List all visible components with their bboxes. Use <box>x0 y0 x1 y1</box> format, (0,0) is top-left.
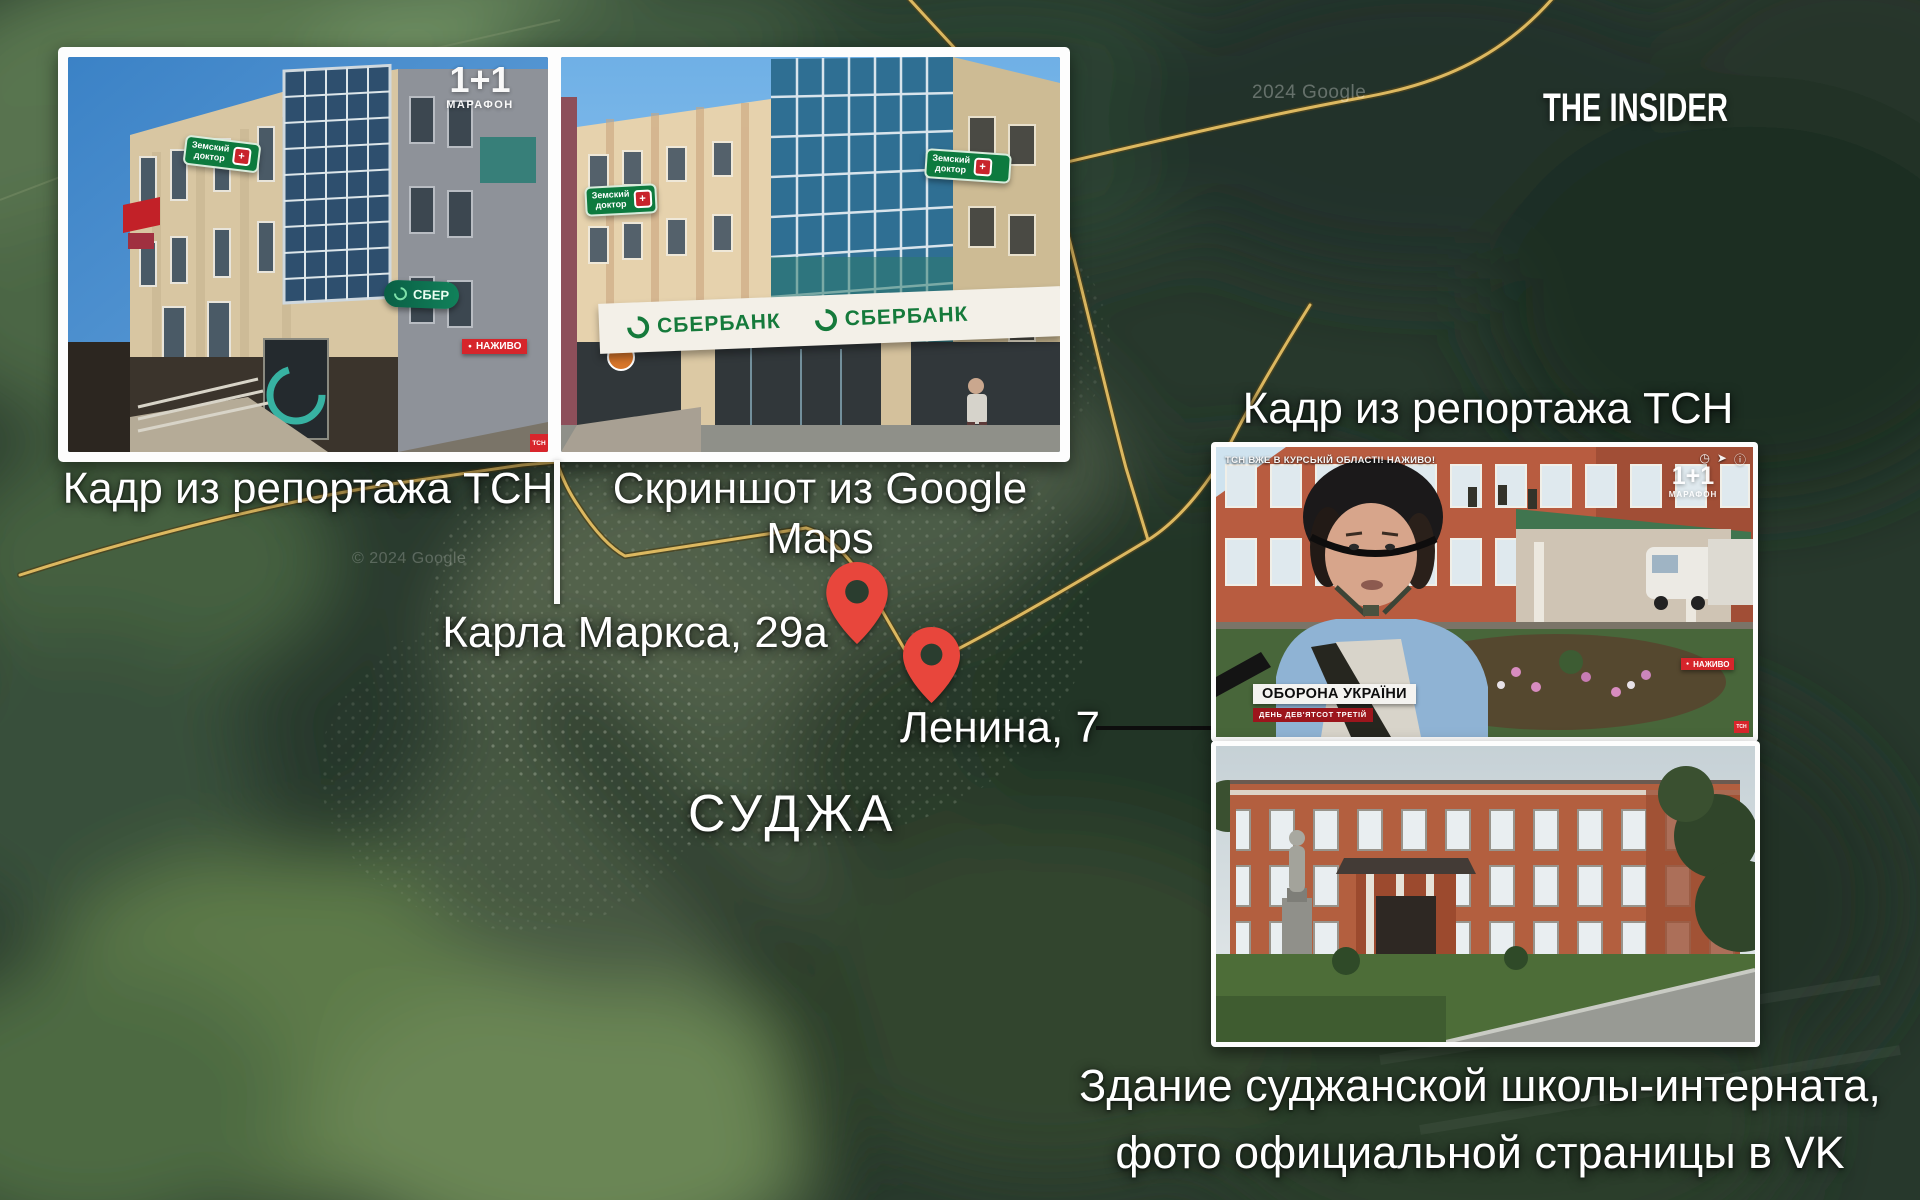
tsn-video-frame: ТСН ВЖЕ В КУРСЬКІЙ ОБЛАСТІ! НАЖИВО! ◷ ➤ … <box>1211 442 1758 742</box>
lower-third-title: ОБОРОНА УКРАЇНИ <box>1253 684 1416 704</box>
info-icon: ⓘ <box>1734 451 1746 468</box>
school-building-photo <box>1216 746 1755 1042</box>
school-photo-frame <box>1211 741 1760 1047</box>
label-lenina: Ленина, 7 <box>900 703 1100 753</box>
sberbank-logo-icon <box>623 312 654 343</box>
bank-building-photo <box>68 57 548 452</box>
connector-line-black <box>1096 726 1214 730</box>
map-pin-lenina <box>903 625 960 705</box>
live-badge-text: НАЖИВО <box>476 341 521 352</box>
sberbank-logo-icon <box>810 305 841 336</box>
investigation-graphic: 2024 Google © 2024 Google THE INSIDER <box>0 0 1920 1200</box>
tsn-logo: ТСН <box>1734 721 1749 733</box>
medical-cross-icon: + <box>231 146 251 166</box>
marafon-logo-text: МАРАФОН <box>1665 490 1721 499</box>
photo-pair-frame: 1+1 МАРАФОН Земский доктор + СБЕР ● НАЖИ… <box>58 47 1070 462</box>
live-badge: ● НАЖИВО <box>462 339 527 354</box>
tsn-logo: ТСН <box>530 434 548 452</box>
label-karla-marksa: Карла Маркса, 29а <box>395 608 875 658</box>
zemsky-doctor-sign: Земский доктор + <box>584 183 657 217</box>
medical-cross-icon: + <box>973 157 992 176</box>
sberbank-sign-text: СБЕРБАНК <box>844 303 969 332</box>
caption-gmaps: Скриншот из Google Maps <box>560 464 1080 564</box>
caption-tsn-left: Кадр из репортажа ТСН <box>48 464 568 514</box>
sberbank-building-photo <box>561 57 1060 452</box>
label-sudzha: СУДЖА <box>688 784 897 844</box>
1plus1-marafon-logo: 1+1 МАРАФОН <box>1665 465 1721 499</box>
tsn-report-photo: 1+1 МАРАФОН Земский доктор + СБЕР ● НАЖИ… <box>68 57 548 452</box>
sber-sign: СБЕР <box>384 280 460 310</box>
zemsky-doctor-sign: Земский доктор + <box>924 148 1012 184</box>
medical-cross-icon: + <box>633 189 652 208</box>
marafon-logo-text: МАРАФОН <box>444 99 516 111</box>
1plus1-marafon-logo: 1+1 МАРАФОН <box>444 63 516 111</box>
map-pin-karla <box>826 562 888 644</box>
live-badge-text: НАЖИВО <box>1693 660 1729 669</box>
sber-sign-text: СБЕР <box>413 287 450 303</box>
live-dot-icon: ● <box>468 343 472 350</box>
1plus1-logo-text: 1+1 <box>1665 465 1721 489</box>
zemsky-line2: доктор <box>595 199 626 211</box>
caption-school-line1: Здание суджанской школы-интерната, <box>1075 1052 1885 1119</box>
lower-third: ОБОРОНА УКРАЇНИ ДЕНЬ ДЕВ'ЯТСОТ ТРЕТІЙ <box>1253 684 1416 722</box>
caption-tsn-right: Кадр из репортажа ТСН <box>1218 384 1758 434</box>
insider-logo: THE INSIDER <box>1543 86 1728 131</box>
sberbank-sign-text: СБЕРБАНК <box>657 310 782 339</box>
sber-tick-icon <box>391 285 409 303</box>
live-dot-icon: ● <box>1686 661 1689 667</box>
1plus1-logo-text: 1+1 <box>444 63 516 97</box>
connector-line-white <box>554 460 560 604</box>
google-maps-photo: Земский доктор + Земский доктор + СБЕРБА… <box>561 57 1060 452</box>
zemsky-line2: доктор <box>935 163 967 175</box>
lower-third-subtitle: ДЕНЬ ДЕВ'ЯТСОТ ТРЕТІЙ <box>1253 708 1373 722</box>
live-badge: ● НАЖИВО <box>1681 658 1734 670</box>
caption-school-line2: фото официальной страницы в VK <box>1075 1119 1885 1186</box>
video-ticker: ТСН ВЖЕ В КУРСЬКІЙ ОБЛАСТІ! НАЖИВО! <box>1225 455 1435 466</box>
caption-school: Здание суджанской школы-интерната, фото … <box>1075 1052 1885 1186</box>
